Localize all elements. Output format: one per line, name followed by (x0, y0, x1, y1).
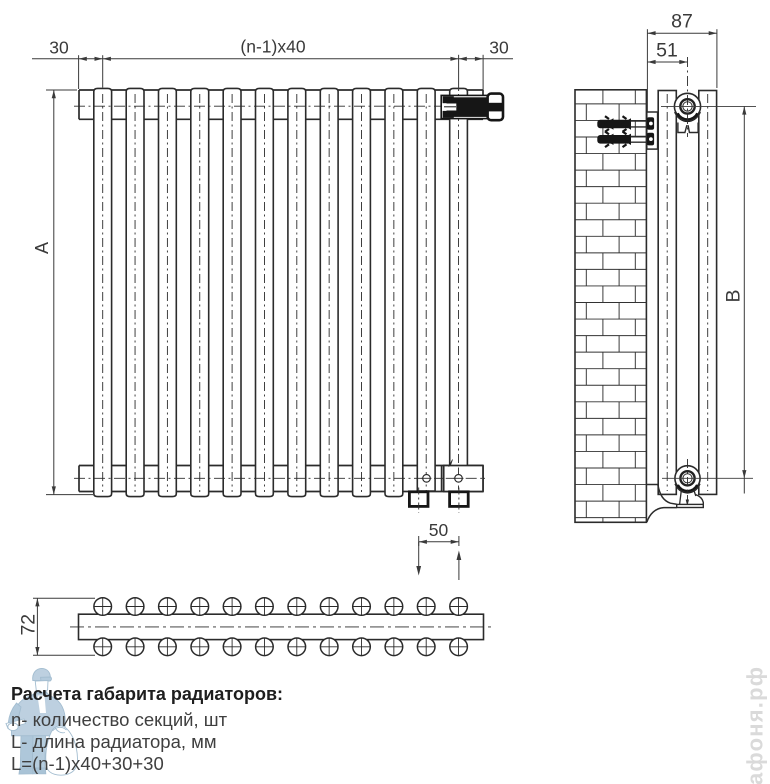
svg-text:50: 50 (429, 520, 449, 540)
svg-text:B: B (723, 289, 745, 302)
svg-text:Расчета габарита радиаторов:: Расчета габарита радиаторов: (11, 684, 283, 704)
svg-text:30: 30 (49, 38, 69, 58)
svg-text:(n-1)x40: (n-1)x40 (240, 37, 305, 57)
svg-text:афоня.рф: афоня.рф (743, 666, 768, 784)
svg-text:30: 30 (489, 38, 509, 58)
svg-text:87: 87 (671, 10, 693, 32)
svg-text:A: A (32, 242, 52, 254)
svg-text:72: 72 (18, 614, 40, 636)
svg-text:L=(n-1)x40+30+30: L=(n-1)x40+30+30 (11, 753, 164, 774)
svg-text:L- длина радиатора, мм: L- длина радиатора, мм (11, 731, 217, 752)
svg-text:n- количество секций, шт: n- количество секций, шт (11, 709, 228, 730)
svg-text:51: 51 (656, 39, 678, 61)
